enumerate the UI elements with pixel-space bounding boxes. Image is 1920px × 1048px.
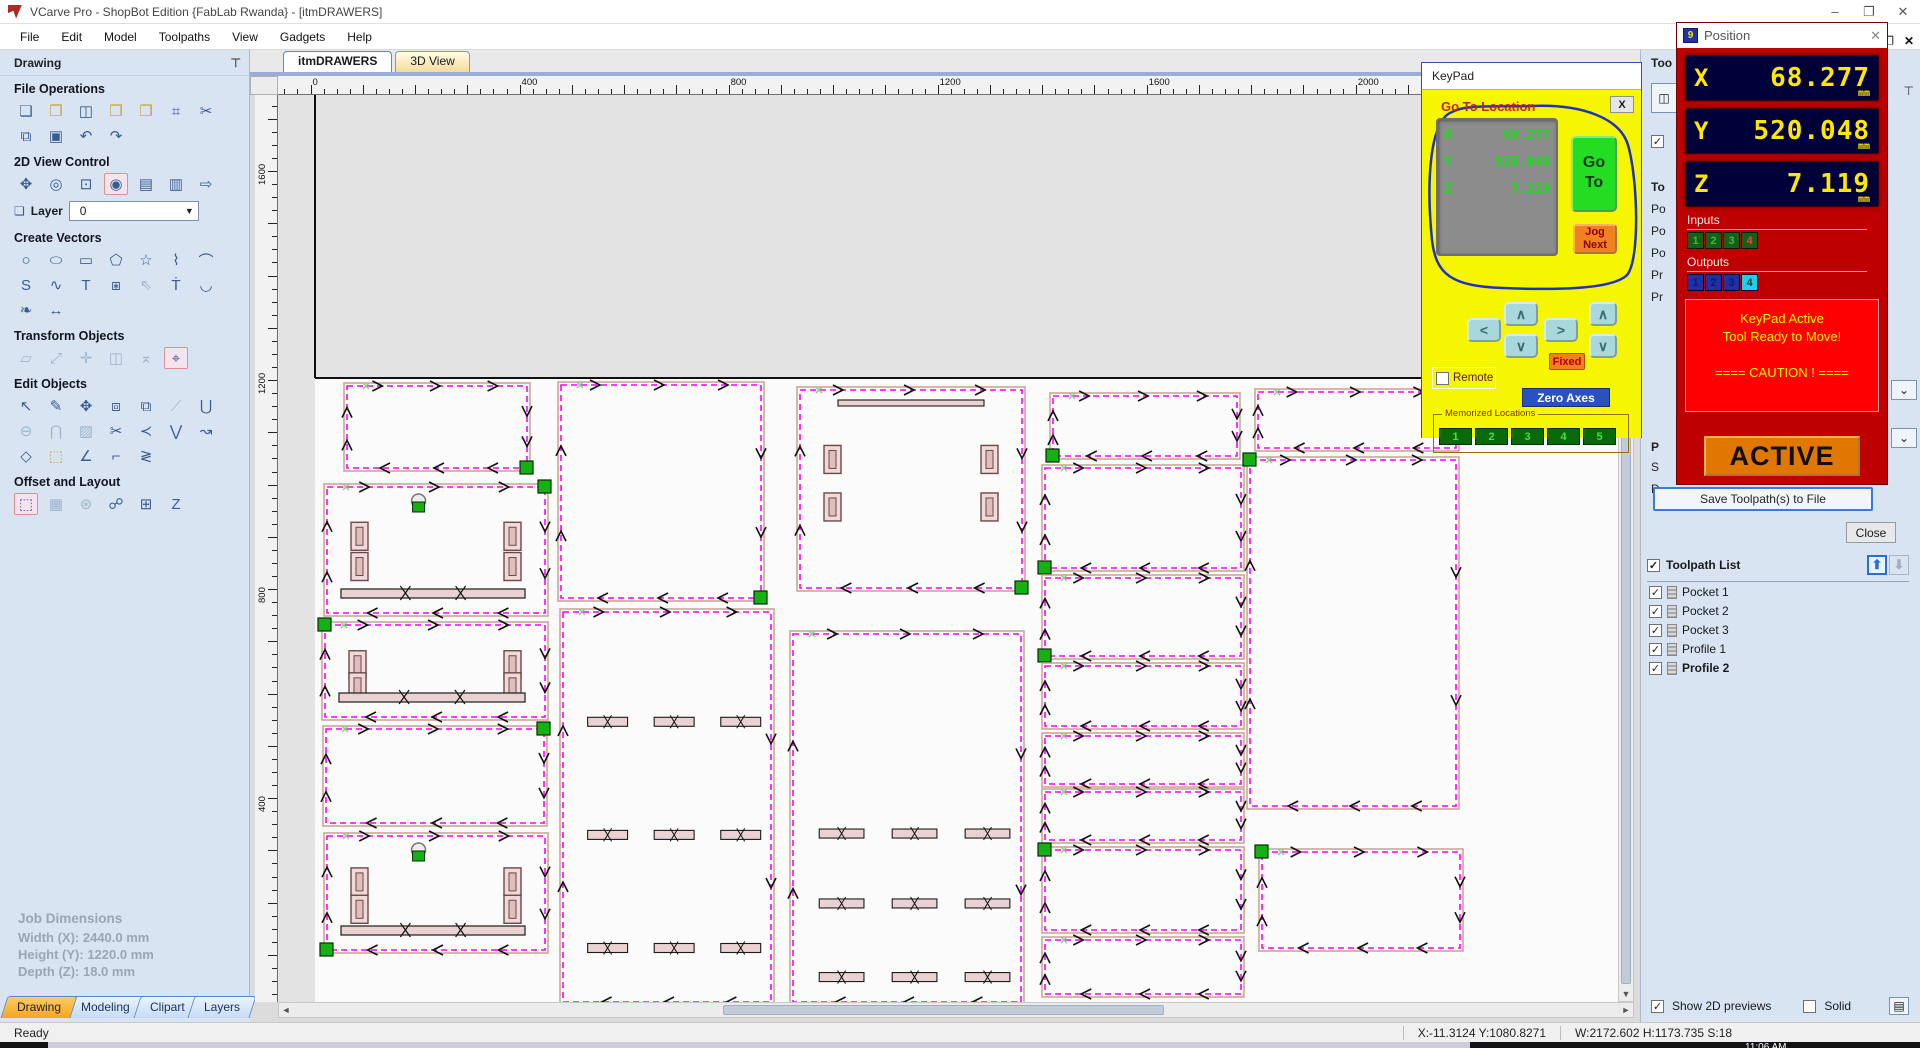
- restore-button[interactable]: ❐: [1852, 1, 1886, 23]
- status-bar: Ready X:-11.3124 Y:1080.8271 W:2172.602 …: [0, 1022, 1920, 1042]
- memorized-locations-label: Memorized Locations: [1442, 408, 1538, 419]
- inputs-label: Inputs: [1687, 213, 1867, 230]
- draw-rectangle-icon[interactable]: ▭: [74, 249, 98, 271]
- origin-marker: [520, 461, 533, 474]
- panel-close-icon[interactable]: ✕: [1904, 34, 1914, 48]
- tab-3d-view[interactable]: 3D View: [395, 51, 469, 72]
- position-close-icon[interactable]: ✕: [1870, 28, 1881, 44]
- ruler-label-y: 400: [257, 796, 268, 812]
- draw-ellipse-icon[interactable]: ⬭: [44, 249, 68, 271]
- menu-toolpaths[interactable]: Toolpaths: [149, 26, 220, 48]
- toolpath-list: ✓ Toolpath List ⬆ ⬇ ✓Pocket 1✓Pocket 2✓P…: [1647, 555, 1909, 677]
- toolpath-item[interactable]: ✓Pocket 1: [1647, 582, 1909, 601]
- outside-material-left: [278, 95, 315, 1002]
- set-size-icon[interactable]: ⤢: [44, 347, 68, 369]
- measure-icon[interactable]: ⟋: [164, 395, 188, 417]
- keypad-lcd: X68.277Y520.048Z7.119: [1436, 118, 1558, 256]
- job-setup-icon[interactable]: ⌗: [164, 100, 188, 122]
- close-panel-button[interactable]: Close: [1846, 522, 1896, 543]
- toolpath-checkbox[interactable]: ✓: [1649, 643, 1662, 656]
- toolpath-icon: [1667, 643, 1677, 656]
- zoom-interactive-icon[interactable]: ◎: [44, 173, 68, 195]
- toolpath-icon: [1667, 605, 1677, 618]
- toolpath-icon: [1667, 624, 1677, 637]
- draw-curve-icon[interactable]: S: [14, 274, 38, 296]
- draw-circle-icon[interactable]: ○: [14, 249, 38, 271]
- memorized-locations-group: Memorized Locations 12345: [1433, 414, 1629, 453]
- window-title: VCarve Pro - ShopBot Edition {FabLab Rwa…: [30, 5, 382, 19]
- select-vectors-icon[interactable]: ↖: [14, 395, 38, 417]
- output-indicator-3[interactable]: 3: [1723, 274, 1740, 291]
- menu-bar: FileEditModelToolpathsViewGadgetsHelp: [0, 24, 1920, 50]
- drawing-canvas[interactable]: [278, 95, 1618, 1002]
- combo-arrow-2[interactable]: ⌄: [1891, 428, 1917, 448]
- remote-checkbox-group: Remote: [1432, 367, 1496, 389]
- goto-location-heading: Go To Location: [1441, 99, 1535, 114]
- node-edit-icon[interactable]: ✎: [44, 395, 68, 417]
- free-transform-icon[interactable]: ⌖: [164, 347, 188, 369]
- section-title-file-operations: File Operations: [14, 82, 239, 96]
- circular-copy-icon[interactable]: ⊛: [74, 493, 98, 515]
- memorized-location-2[interactable]: 2: [1475, 428, 1508, 445]
- input-indicator-3[interactable]: 3: [1723, 232, 1740, 249]
- toolpath-list-checkbox[interactable]: ✓: [1647, 559, 1660, 572]
- dock-tab-drawing[interactable]: Drawing: [0, 996, 77, 1018]
- toolpath-item[interactable]: ✓Pocket 2: [1647, 601, 1909, 620]
- keypad-lcd-value: 68.277: [1503, 128, 1550, 143]
- toolpaths-sliver-text: Po: [1651, 224, 1666, 238]
- output-indicator-1[interactable]: 1: [1687, 274, 1704, 291]
- switch-3d-view-icon[interactable]: ⇨: [194, 173, 218, 195]
- distort-object-icon[interactable]: ⌅: [134, 347, 158, 369]
- fit-curve-icon[interactable]: ↝: [194, 420, 218, 442]
- app-window: VCarve Pro - ShopBot Edition {FabLab Rwa…: [0, 0, 1920, 1048]
- toolpath-label: Profile 2: [1682, 661, 1729, 675]
- toolpaths-panel-title: Too: [1651, 56, 1672, 70]
- origin-marker: [537, 722, 550, 735]
- remote-checkbox[interactable]: [1436, 372, 1449, 385]
- dock-tab-layers[interactable]: Layers: [188, 996, 257, 1018]
- keypad-lcd-axis: X: [1444, 128, 1452, 143]
- title-bar: VCarve Pro - ShopBot Edition {FabLab Rwa…: [0, 0, 1920, 24]
- origin-marker: [1038, 649, 1051, 662]
- position-window: 9 Position ✕ X68.277mmY520.048mmZ7.119mm…: [1676, 22, 1888, 485]
- redo-icon[interactable]: ↷: [104, 125, 128, 147]
- origin-marker: [754, 591, 767, 604]
- ruler-label-x: 1200: [940, 77, 961, 88]
- ruler-label-x: 1600: [1149, 77, 1170, 88]
- import-vectors-icon[interactable]: ❒: [104, 100, 128, 122]
- extend-vector-icon[interactable]: ∠: [74, 445, 98, 467]
- move-object-icon[interactable]: ▱: [14, 347, 38, 369]
- join-vectors-icon[interactable]: ⋁: [164, 420, 188, 442]
- origin-marker: [1038, 561, 1051, 574]
- layers-icon: ❏: [14, 204, 25, 218]
- origin-marker: [1015, 581, 1028, 594]
- draw-polygon-icon[interactable]: ⬠: [104, 249, 128, 271]
- ruler-label-x: 0: [313, 77, 318, 88]
- ungroup-objects-icon[interactable]: ⧉: [134, 395, 158, 417]
- zoom-selected-icon[interactable]: ◉: [104, 173, 128, 195]
- weld-vectors-icon[interactable]: ⋃: [194, 395, 218, 417]
- zero-axes-button[interactable]: Zero Axes: [1522, 388, 1610, 407]
- outside-material-area: [278, 95, 1618, 378]
- input-indicator-2[interactable]: 2: [1705, 232, 1722, 249]
- fillet-tool-icon[interactable]: ≺: [134, 420, 158, 442]
- zoom-sheet-icon[interactable]: ▥: [164, 173, 188, 195]
- section-title-edit-objects: Edit Objects: [14, 377, 239, 391]
- menu-model[interactable]: Model: [94, 26, 147, 48]
- output-indicator-2[interactable]: 2: [1705, 274, 1722, 291]
- show-2d-previews-checkbox[interactable]: ✓: [1651, 1000, 1664, 1013]
- scroll-down-icon[interactable]: ▼: [1619, 987, 1633, 1001]
- close-vector-icon[interactable]: ◇: [14, 445, 38, 467]
- undo-icon[interactable]: ↶: [74, 125, 98, 147]
- position-lcd-z: Z7.119mm: [1685, 161, 1879, 207]
- jog-next-label: JogNext: [1583, 226, 1607, 251]
- ruler-label-y: 800: [257, 587, 268, 603]
- output-indicator-4[interactable]: 4: [1741, 274, 1758, 291]
- origin-marker: [1046, 449, 1059, 462]
- trim-vectors-icon[interactable]: ✂: [104, 420, 128, 442]
- toolpaths-sliver-text: Po: [1651, 202, 1666, 216]
- section-title-offset-and-layout: Offset and Layout: [14, 475, 239, 489]
- vcarve-logo-icon: [8, 5, 22, 19]
- toolpaths-sliver-text: S: [1651, 460, 1659, 474]
- toolpath-icon: [1667, 586, 1677, 599]
- draw-star-icon[interactable]: ☆: [134, 249, 158, 271]
- fixed-step-button[interactable]: Fixed: [1549, 353, 1585, 370]
- toolpath-icon: [1667, 662, 1677, 675]
- goto-button[interactable]: GoTo: [1571, 136, 1617, 212]
- menu-view[interactable]: View: [222, 26, 268, 48]
- keypad-lcd-axis: Z: [1444, 182, 1452, 197]
- z-up-key[interactable]: ∧: [1589, 302, 1617, 326]
- toolpath-checkbox[interactable]: ✓: [1649, 605, 1662, 618]
- keypad-lcd-value: 7.119: [1511, 182, 1550, 197]
- save-file-icon[interactable]: ◫: [74, 100, 98, 122]
- copy-icon[interactable]: ⧉: [14, 125, 38, 147]
- scroll-right-icon[interactable]: ►: [1619, 1003, 1633, 1017]
- jog-down-key[interactable]: ∨: [1504, 334, 1538, 358]
- origin-marker: [538, 480, 551, 493]
- save-toolpaths-button[interactable]: Save Toolpath(s) to File: [1653, 487, 1873, 511]
- offset-vectors-icon[interactable]: ⬚: [14, 493, 38, 515]
- toolpaths-sliver-text: Po: [1651, 246, 1666, 260]
- menu-edit[interactable]: Edit: [51, 26, 92, 48]
- block-copy-icon[interactable]: ⊞: [134, 493, 158, 515]
- toolpath-item[interactable]: ✓Pocket 3: [1647, 620, 1909, 639]
- layer-select[interactable]: 0▼: [69, 201, 199, 221]
- toolpath-checkbox[interactable]: ✓: [1649, 662, 1662, 675]
- jog-next-button[interactable]: JogNext: [1573, 224, 1617, 254]
- preview-toggle-icon[interactable]: ▤: [1889, 997, 1909, 1015]
- combo-arrow-1[interactable]: ⌄: [1891, 380, 1917, 400]
- save-toolpath-icon[interactable]: ◫: [1651, 83, 1677, 113]
- minimize-button[interactable]: –: [1818, 1, 1852, 23]
- toolpath-label: Pocket 2: [1682, 604, 1729, 618]
- text-block-icon[interactable]: Ṫ: [164, 274, 188, 296]
- export-vectors-icon[interactable]: ❐: [134, 100, 158, 122]
- array-copy-icon[interactable]: ▦: [44, 493, 68, 515]
- trace-bitmap-icon[interactable]: ❧: [14, 299, 38, 321]
- group-objects-icon[interactable]: ⧈: [104, 395, 128, 417]
- origin-marker: [1255, 845, 1268, 858]
- layer-dropdown-icon[interactable]: ▼: [185, 206, 194, 216]
- taskbar-app-segment[interactable]: [48, 1042, 1470, 1048]
- keypad-dialog: KeyPad Go To Location X X68.277Y520.048Z…: [1421, 62, 1642, 438]
- layer-label: Layer: [31, 204, 63, 218]
- jog-left-key[interactable]: <: [1467, 318, 1501, 342]
- ruler-label-x: 800: [731, 77, 747, 88]
- os-taskbar: 11:06 AM: [0, 1042, 1920, 1048]
- draw-text-icon[interactable]: T: [74, 274, 98, 296]
- move-down-icon[interactable]: ⬇: [1889, 555, 1909, 575]
- toolpath-label: Pocket 3: [1682, 623, 1729, 637]
- caution-line: KeyPad Active: [1686, 310, 1878, 328]
- solid-checkbox[interactable]: [1803, 1000, 1816, 1013]
- move-selection-icon[interactable]: ✥: [74, 395, 98, 417]
- hscroll-thumb[interactable]: [723, 1005, 1164, 1015]
- toolpaths-sliver-text: To: [1651, 180, 1665, 194]
- active-button[interactable]: ACTIVE: [1704, 436, 1860, 476]
- close-button[interactable]: ✕: [1886, 1, 1920, 23]
- horizontal-scrollbar[interactable]: ◄ ►: [278, 1002, 1634, 1018]
- ruler-label-x: 400: [522, 77, 538, 88]
- memorized-location-1[interactable]: 1: [1439, 428, 1472, 445]
- text-on-curve-icon[interactable]: ◡: [194, 274, 218, 296]
- dimension-icon[interactable]: ↔: [44, 299, 68, 321]
- align-objects-icon[interactable]: ✛: [74, 347, 98, 369]
- jog-up-key[interactable]: ∧: [1504, 302, 1538, 326]
- panel-checkbox[interactable]: ✓: [1651, 135, 1664, 148]
- cut-icon[interactable]: ✂: [194, 100, 218, 122]
- origin-marker: [320, 943, 333, 956]
- new-file-icon[interactable]: ❏: [14, 100, 38, 122]
- ruler-horizontal: 0400800120016002000: [278, 76, 1618, 95]
- memorized-location-5[interactable]: 5: [1583, 428, 1616, 445]
- ruler-corner: [250, 76, 278, 95]
- show-2d-previews-label: Show 2D previews: [1672, 999, 1771, 1013]
- section-title-transform-objects: Transform Objects: [14, 329, 239, 343]
- caution-line: ==== CAUTION ! ====: [1686, 364, 1878, 382]
- pan-view-icon[interactable]: ✥: [14, 173, 38, 195]
- subtract-vectors-icon[interactable]: ⊖: [14, 420, 38, 442]
- panel-pin-icon[interactable]: ⊤: [1904, 84, 1914, 98]
- position-window-title: Position: [1704, 28, 1750, 43]
- job-depth: Depth (Z): 18.0 mm: [18, 963, 239, 980]
- draw-polyline-icon[interactable]: ⌇: [164, 249, 188, 271]
- toolpath-label: Pocket 1: [1682, 585, 1729, 599]
- taskbar-clock: 11:06 AM: [1745, 1042, 1787, 1048]
- zoom-box-icon[interactable]: ⊡: [74, 173, 98, 195]
- select-text-icon[interactable]: ⇖: [134, 274, 158, 296]
- ruler-label-y: 1600: [257, 164, 268, 185]
- position-lcd-y: Y520.048mm: [1685, 108, 1879, 154]
- drawing-panel: Drawing ⊤ File Operations❏❒◫❒❐⌗✂⧉▣↶↷2D V…: [0, 50, 250, 996]
- job-dimensions: Job Dimensions Width (X): 2440.0 mm Heig…: [0, 910, 249, 996]
- toolpath-item[interactable]: ✓Profile 1: [1647, 639, 1909, 658]
- section-title-create-vectors: Create Vectors: [14, 231, 239, 245]
- goto-button-label: GoTo: [1583, 154, 1605, 191]
- open-file-icon[interactable]: ❒: [44, 100, 68, 122]
- keypad-lcd-axis: Y: [1444, 155, 1452, 170]
- pin-icon[interactable]: ⊤: [231, 56, 241, 70]
- solid-label: Solid: [1824, 999, 1851, 1013]
- menu-gadgets[interactable]: Gadgets: [270, 26, 335, 48]
- job-height: Height (Y): 1220.0 mm: [18, 946, 239, 963]
- draw-freehand-icon[interactable]: ∿: [44, 274, 68, 296]
- jog-right-key[interactable]: >: [1544, 318, 1578, 342]
- trim-to-vector-icon[interactable]: ⌐: [104, 445, 128, 467]
- section-title-2d-view-control: 2D View Control: [14, 155, 239, 169]
- caution-line: [1686, 346, 1878, 364]
- position-lcd-x: X68.277mm: [1685, 55, 1879, 101]
- job-width: Width (X): 2440.0 mm: [18, 929, 239, 946]
- origin-marker: [1038, 843, 1051, 856]
- status-ready: Ready: [0, 1023, 63, 1042]
- memorized-location-3[interactable]: 3: [1511, 428, 1544, 445]
- origin-marker: [318, 618, 331, 631]
- keypad-title[interactable]: KeyPad: [1422, 63, 1641, 89]
- nesting-icon[interactable]: Z: [164, 493, 188, 515]
- zoom-drawing-icon[interactable]: ▤: [134, 173, 158, 195]
- drawing-panel-title: Drawing: [14, 56, 61, 70]
- intersect-vectors-icon[interactable]: ⋂: [44, 420, 68, 442]
- job-dimensions-title: Job Dimensions: [18, 910, 239, 927]
- hatch-fill-icon[interactable]: ▨: [74, 420, 98, 442]
- toolpaths-sliver-text: Pr: [1651, 268, 1663, 282]
- keypad-lcd-value: 520.048: [1495, 155, 1550, 170]
- outputs-label: Outputs: [1687, 255, 1867, 272]
- layer-value: 0: [80, 204, 87, 218]
- status-coordinates: X:-11.3124 Y:1080.8271: [1404, 1023, 1560, 1042]
- paste-icon[interactable]: ▣: [44, 125, 68, 147]
- origin-marker: [1243, 453, 1256, 466]
- edit-spans-icon[interactable]: ⬚: [44, 445, 68, 467]
- dock-tabs: DrawingModelingClipartLayers: [0, 996, 250, 1022]
- keypad-close-button[interactable]: X: [1610, 96, 1634, 113]
- move-up-icon[interactable]: ⬆: [1867, 555, 1887, 575]
- draw-text-box-icon[interactable]: ⧆: [104, 274, 128, 296]
- draw-arc-icon[interactable]: ⌒: [194, 249, 218, 271]
- toolpath-checkbox[interactable]: ✓: [1649, 624, 1662, 637]
- mirror-object-icon[interactable]: ◫: [104, 347, 128, 369]
- copy-along-vector-icon[interactable]: ☍: [104, 493, 128, 515]
- caution-message: KeyPad ActiveTool Ready to Move! ==== CA…: [1685, 299, 1879, 412]
- input-indicator-4[interactable]: 4: [1741, 232, 1758, 249]
- input-indicator-1[interactable]: 1: [1687, 232, 1704, 249]
- menu-help[interactable]: Help: [337, 26, 382, 48]
- menu-file[interactable]: File: [10, 26, 49, 48]
- ruler-label-y: 1200: [257, 373, 268, 394]
- toolpath-list-title: Toolpath List: [1666, 558, 1740, 572]
- caution-line: Tool Ready to Move!: [1686, 328, 1878, 346]
- scroll-left-icon[interactable]: ◄: [279, 1003, 293, 1017]
- fit-arcs-icon[interactable]: ≷: [134, 445, 158, 467]
- remote-label: Remote: [1453, 372, 1493, 384]
- status-dimensions: W:2172.602 H:1173.735 S:18: [1561, 1023, 1746, 1042]
- memorized-location-4[interactable]: 4: [1547, 428, 1580, 445]
- toolpath-checkbox[interactable]: ✓: [1649, 586, 1662, 599]
- z-down-key[interactable]: ∨: [1589, 334, 1617, 358]
- position-window-icon: 9: [1683, 28, 1698, 43]
- ruler-vertical: 16001200800400: [255, 95, 278, 1002]
- toolpaths-sliver-text: Pr: [1651, 290, 1663, 304]
- ruler-label-x: 2000: [1358, 77, 1379, 88]
- tab-itmdrawers[interactable]: itmDRAWERS: [283, 51, 392, 72]
- toolpath-item[interactable]: ✓Profile 2: [1647, 658, 1909, 677]
- toolpaths-sliver-text: P: [1651, 440, 1659, 454]
- toolpath-label: Profile 1: [1682, 642, 1726, 656]
